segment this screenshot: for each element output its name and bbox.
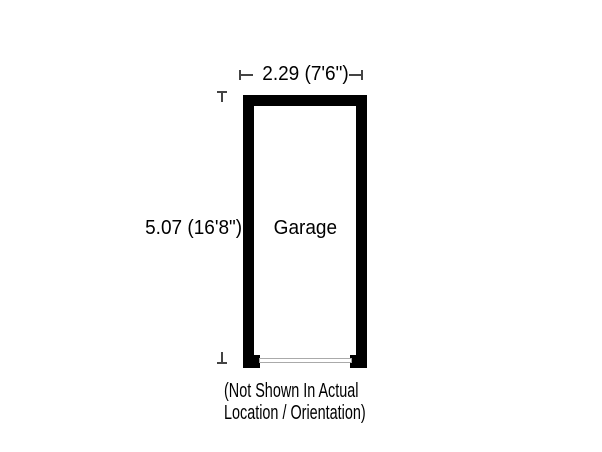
tick-line [221, 352, 223, 362]
tick-line [349, 74, 361, 76]
garage-door [259, 358, 352, 363]
height-dimension: 5.07 (16'8") [130, 217, 242, 239]
room-label-wrap: Garage [254, 217, 356, 239]
floorplan-canvas: 2.29 (7'6") 5.07 (16'8") Garage (Not Sho… [0, 0, 602, 452]
wall-top [243, 95, 367, 106]
dimension-tick-left-icon [239, 70, 253, 80]
tick-line [241, 74, 253, 76]
orientation-note: (Not Shown In Actual Location / Orientat… [224, 380, 366, 424]
room-label: Garage [273, 217, 336, 239]
tick-bar [361, 70, 363, 80]
width-dimension-label: 2.29 (7'6") [262, 63, 348, 85]
orientation-note-line1: (Not Shown In Actual [224, 380, 366, 402]
orientation-note-line2: Location / Orientation) [224, 402, 366, 424]
tick-bar [217, 362, 227, 364]
wall-right [356, 95, 367, 368]
dimension-tick-top-icon [217, 91, 227, 102]
height-dimension-label: 5.07 (16'8") [145, 217, 242, 239]
dimension-tick-right-icon [349, 70, 363, 80]
dimension-tick-bottom-icon [217, 352, 227, 364]
tick-line [221, 93, 223, 102]
wall-left [243, 95, 254, 368]
